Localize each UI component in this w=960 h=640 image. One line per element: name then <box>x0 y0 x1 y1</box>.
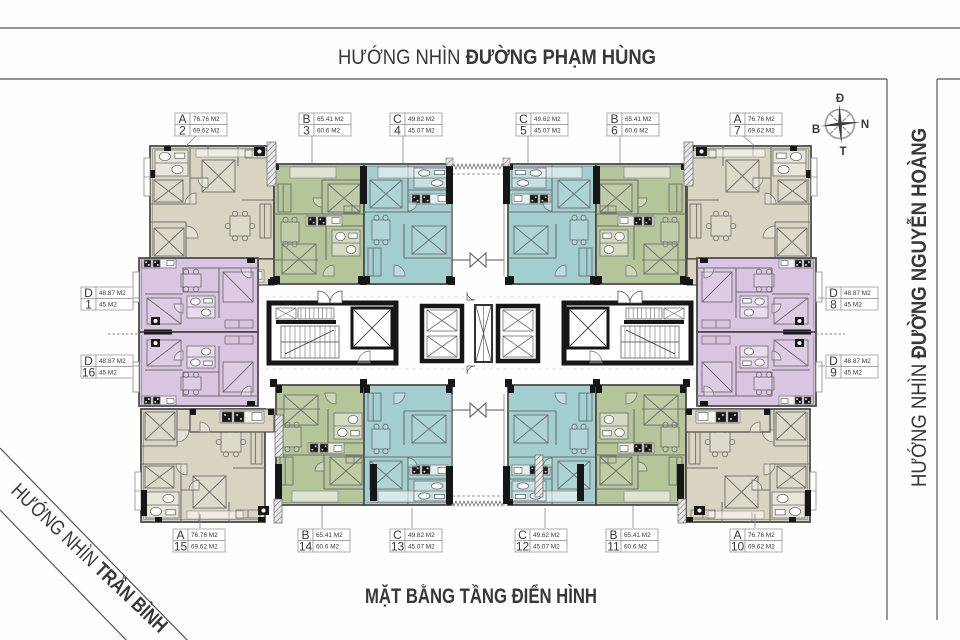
svg-text:49.62 M2: 49.62 M2 <box>408 532 435 539</box>
svg-text:60.6 M2: 60.6 M2 <box>316 544 340 551</box>
svg-text:65.41 M2: 65.41 M2 <box>624 532 651 539</box>
svg-text:13: 13 <box>391 540 405 554</box>
svg-text:11: 11 <box>607 540 620 554</box>
svg-text:8: 8 <box>830 298 837 312</box>
svg-text:48.87 M2: 48.87 M2 <box>99 290 126 297</box>
svg-text:45 M2: 45 M2 <box>844 302 862 309</box>
svg-text:1: 1 <box>85 298 92 312</box>
svg-text:6: 6 <box>611 124 618 138</box>
svg-text:60.6 M2: 60.6 M2 <box>317 128 341 135</box>
svg-text:49.62 M2: 49.62 M2 <box>408 116 435 123</box>
svg-text:76.76 M2: 76.76 M2 <box>191 532 218 539</box>
svg-text:45.07 M2: 45.07 M2 <box>534 128 561 135</box>
svg-text:48.87 M2: 48.87 M2 <box>844 358 871 365</box>
svg-text:69.62 M2: 69.62 M2 <box>748 544 775 551</box>
svg-text:3: 3 <box>303 124 310 138</box>
svg-text:45.07 M2: 45.07 M2 <box>533 544 560 551</box>
svg-text:60.6 M2: 60.6 M2 <box>625 128 649 135</box>
svg-text:4: 4 <box>394 124 401 138</box>
svg-text:5: 5 <box>520 124 527 138</box>
svg-text:10: 10 <box>731 540 745 554</box>
svg-text:12: 12 <box>516 540 530 554</box>
svg-text:45 M2: 45 M2 <box>844 370 862 377</box>
svg-text:49.62 M2: 49.62 M2 <box>533 532 560 539</box>
svg-text:9: 9 <box>830 366 837 380</box>
svg-text:N: N <box>861 119 869 131</box>
svg-text:65.41 M2: 65.41 M2 <box>317 116 344 123</box>
svg-text:45.07 M2: 45.07 M2 <box>408 128 435 135</box>
svg-text:69.62 M2: 69.62 M2 <box>748 128 775 135</box>
svg-text:MẶT BẰNG TẦNG ĐIỂN HÌNH: MẶT BẰNG TẦNG ĐIỂN HÌNH <box>365 583 597 608</box>
svg-text:7: 7 <box>734 124 741 138</box>
svg-text:16: 16 <box>82 366 96 380</box>
svg-text:45.07 M2: 45.07 M2 <box>408 544 435 551</box>
svg-text:15: 15 <box>174 540 188 554</box>
svg-text:69.62 M2: 69.62 M2 <box>193 128 220 135</box>
svg-text:49.62 M2: 49.62 M2 <box>534 116 561 123</box>
svg-text:45 M2: 45 M2 <box>99 302 117 309</box>
svg-text:65.41 M2: 65.41 M2 <box>316 532 343 539</box>
svg-text:48.87 M2: 48.87 M2 <box>99 358 126 365</box>
svg-text:48.87 M2: 48.87 M2 <box>844 290 871 297</box>
svg-text:B: B <box>812 124 820 136</box>
svg-text:Đ: Đ <box>836 93 844 105</box>
svg-text:HƯỚNG NHÌN ĐƯỜNG PHẠM HÙNG: HƯỚNG NHÌN ĐƯỜNG PHẠM HÙNG <box>338 44 656 69</box>
svg-text:60.6 M2: 60.6 M2 <box>624 544 648 551</box>
svg-text:2: 2 <box>179 124 186 138</box>
svg-text:HƯỚNG NHÌN ĐƯỜNG NGUYỄN HOÀNG: HƯỚNG NHÌN ĐƯỜNG NGUYỄN HOÀNG <box>905 128 931 487</box>
svg-text:69.62 M2: 69.62 M2 <box>191 544 218 551</box>
svg-text:76.76 M2: 76.76 M2 <box>748 532 775 539</box>
svg-text:45 M2: 45 M2 <box>99 370 117 377</box>
svg-text:76.76 M2: 76.76 M2 <box>748 116 775 123</box>
svg-text:T: T <box>839 146 846 158</box>
svg-text:76.76 M2: 76.76 M2 <box>193 116 220 123</box>
svg-text:14: 14 <box>299 540 313 554</box>
svg-text:65.41 M2: 65.41 M2 <box>625 116 652 123</box>
